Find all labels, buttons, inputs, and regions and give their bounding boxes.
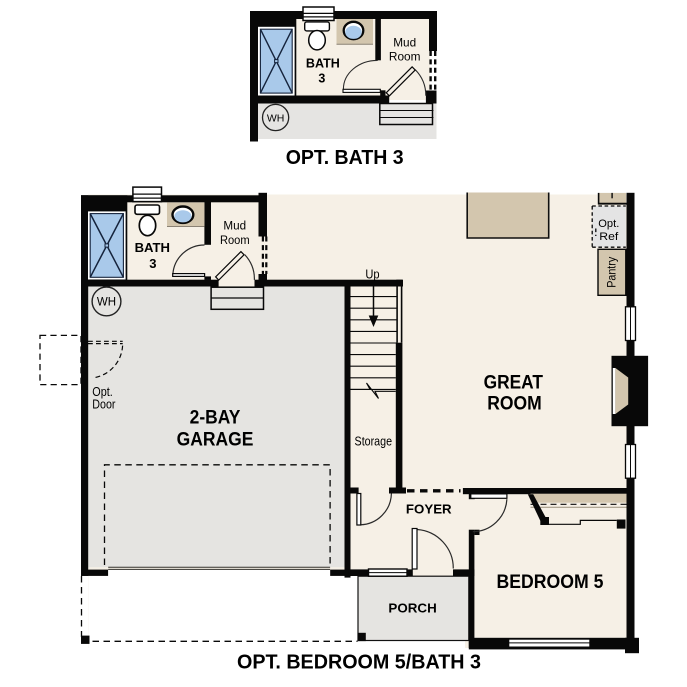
svg-text:Pantry: Pantry bbox=[607, 257, 619, 288]
svg-text:Opt.: Opt. bbox=[598, 218, 619, 230]
svg-text:3: 3 bbox=[318, 72, 325, 86]
svg-text:OPT. BATH 3: OPT. BATH 3 bbox=[286, 146, 404, 169]
svg-text:Mud: Mud bbox=[223, 221, 246, 233]
svg-text:2-BAY: 2-BAY bbox=[190, 408, 241, 429]
svg-text:PORCH: PORCH bbox=[388, 602, 436, 616]
svg-text:ROOM: ROOM bbox=[487, 394, 542, 415]
svg-text:Room: Room bbox=[389, 50, 421, 64]
svg-text:FOYER: FOYER bbox=[406, 502, 452, 516]
svg-text:BEDROOM 5: BEDROOM 5 bbox=[497, 572, 604, 593]
svg-text:GARAGE: GARAGE bbox=[177, 429, 254, 450]
svg-text:BATH: BATH bbox=[306, 56, 340, 70]
svg-text:Up: Up bbox=[365, 267, 379, 282]
svg-text:Storage: Storage bbox=[355, 434, 393, 448]
svg-text:Door: Door bbox=[92, 396, 116, 411]
svg-text:Mud: Mud bbox=[393, 36, 416, 50]
svg-text:BATH: BATH bbox=[135, 240, 170, 255]
svg-text:Ref: Ref bbox=[599, 231, 619, 243]
svg-text:WH: WH bbox=[97, 297, 116, 309]
svg-text:OPT. BEDROOM 5/BATH 3: OPT. BEDROOM 5/BATH 3 bbox=[237, 652, 481, 674]
svg-text:GREAT: GREAT bbox=[484, 373, 544, 394]
svg-text:Room: Room bbox=[220, 235, 250, 247]
svg-text:WH: WH bbox=[267, 112, 285, 124]
svg-text:3: 3 bbox=[149, 256, 156, 271]
